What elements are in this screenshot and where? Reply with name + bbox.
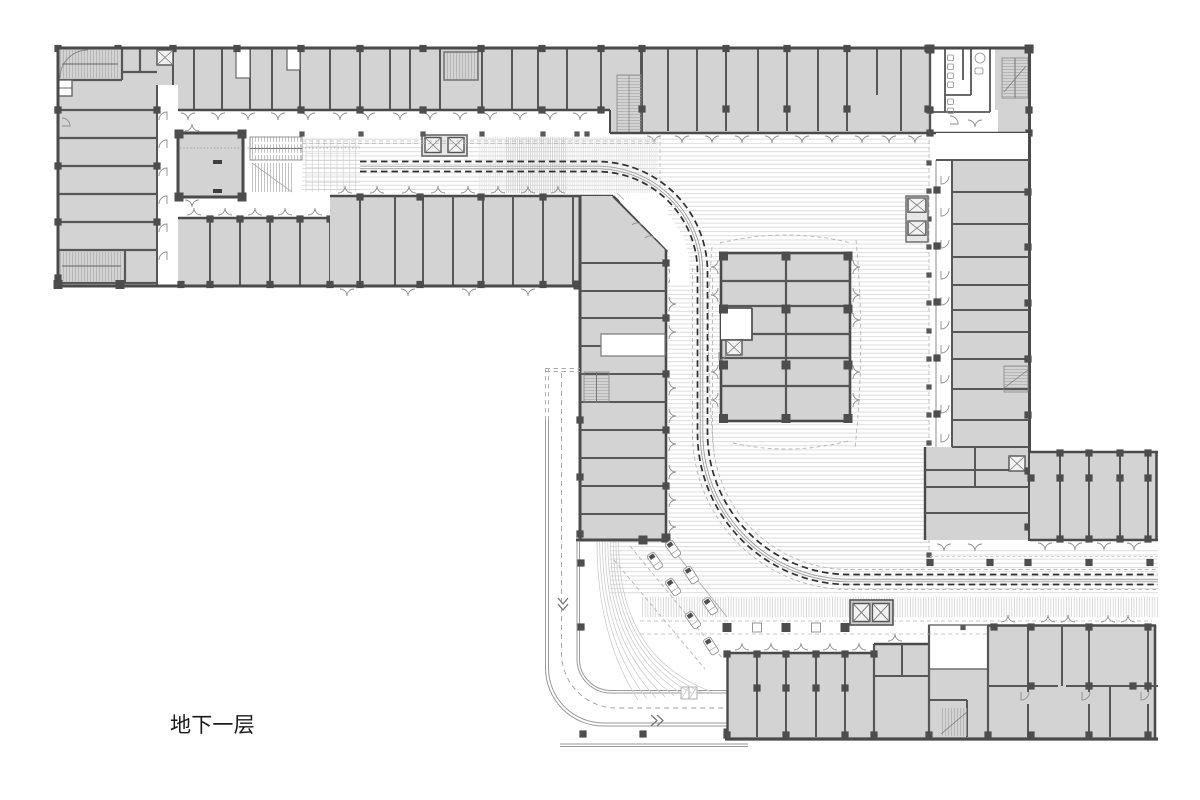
svg-text:地下一层: 地下一层 (170, 714, 255, 737)
